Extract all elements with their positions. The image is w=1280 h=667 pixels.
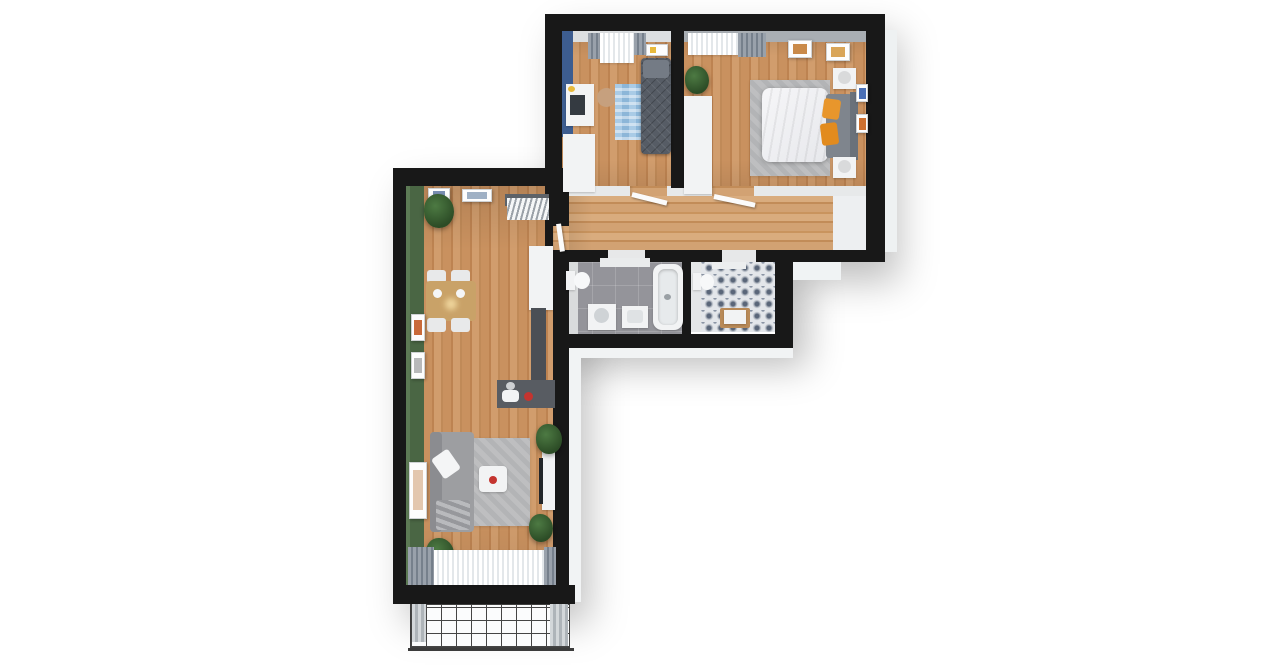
bath-tub-faucet (664, 294, 671, 300)
coffee-table-bowl (489, 476, 497, 484)
kitchen-window-louvers (507, 198, 549, 220)
bath-toilet-bowl (574, 272, 590, 289)
master-lamp-bottom (838, 160, 851, 173)
kids-shelf-decor (650, 47, 656, 53)
dining-plate-1 (433, 289, 442, 298)
wall-bedrooms-right (866, 14, 885, 262)
kids-curtain-sheer (600, 33, 634, 63)
wall-living-bottom (393, 585, 575, 604)
master-wall-art-right-2-print (859, 118, 866, 130)
master-bed-duvet (762, 88, 828, 162)
wall-between-bedrooms (671, 28, 684, 188)
kids-laptop (570, 95, 585, 115)
master-wardrobe (684, 96, 712, 194)
hallway-floor (562, 196, 866, 250)
wall-bedrooms-top (545, 14, 885, 31)
balcony-curtain-left (408, 547, 434, 585)
master-pillow-2 (820, 122, 840, 146)
bath-sink-basin (627, 310, 643, 323)
balcony-post-left (412, 604, 426, 642)
tv-console (542, 450, 555, 510)
balcony-curtain-sheer (434, 550, 544, 585)
dining-plate-2 (456, 289, 465, 298)
green-wall-frame-1-print (414, 320, 422, 335)
balcony-floor (410, 604, 570, 648)
kids-desk-chair (597, 88, 616, 107)
wall-bath-wc-divider (682, 260, 691, 336)
wall-bath-bottom (553, 334, 793, 348)
balcony-curtain-right (544, 547, 556, 585)
kitchen-upper-cabinet (529, 246, 553, 310)
master-lamp-top (838, 71, 851, 84)
master-wall-art-1-print (793, 44, 807, 54)
living-plant-right-bottom (529, 514, 553, 542)
master-pillow-1 (822, 98, 842, 120)
wc-sink-basin (724, 310, 746, 324)
dining-pendant-light (445, 298, 457, 310)
tv-screen (539, 458, 543, 504)
master-curtain-gray (738, 33, 766, 57)
balcony-edge (408, 648, 574, 651)
hallway-closet (833, 196, 866, 250)
bath-shelf (600, 258, 650, 267)
kitchen-pot (506, 382, 515, 390)
kids-wardrobe (563, 134, 595, 192)
green-wall-frame-2-print (414, 358, 422, 373)
green-wall-frame-3-print (413, 470, 423, 510)
wall-side-face-right-living (569, 336, 581, 602)
wall-side-face-right-bedrooms (885, 30, 897, 252)
kitchen-counter-vertical (531, 308, 546, 382)
master-plant (685, 66, 709, 94)
kids-pencil-cup (568, 86, 575, 92)
kitchen-sink (502, 390, 519, 402)
wall-side-face-below-bath (560, 348, 793, 358)
living-plant-right-top (536, 424, 562, 454)
wall-living-top (393, 168, 569, 186)
wc-shelf (712, 262, 746, 269)
apartment-floorplan-3d-render (0, 0, 1280, 667)
wall-hallway-bottom (545, 250, 885, 262)
master-curtain-sheer (688, 33, 738, 55)
kitchen-kettle (524, 392, 533, 401)
sofa-throw-blanket (436, 500, 470, 530)
wc-toilet-bowl (700, 274, 714, 290)
dining-chair-3 (427, 318, 446, 332)
bath-washer-door (594, 308, 609, 323)
master-wall-art-2-print (831, 47, 845, 57)
kids-bed-pillow (643, 60, 669, 78)
living-corner-plant (424, 194, 454, 228)
master-wall-art-right-1-print (859, 88, 866, 99)
wc-door-opening (722, 250, 756, 262)
kids-curtain-right (634, 33, 646, 55)
living-green-accent-wall (406, 186, 424, 585)
wall-living-left (393, 168, 406, 604)
balcony-post-right (550, 604, 568, 646)
dining-chair-4 (451, 318, 470, 332)
wall-wc-right (775, 256, 793, 342)
kids-curtain-left (588, 33, 600, 59)
living-wall-art-2-print (467, 192, 487, 199)
